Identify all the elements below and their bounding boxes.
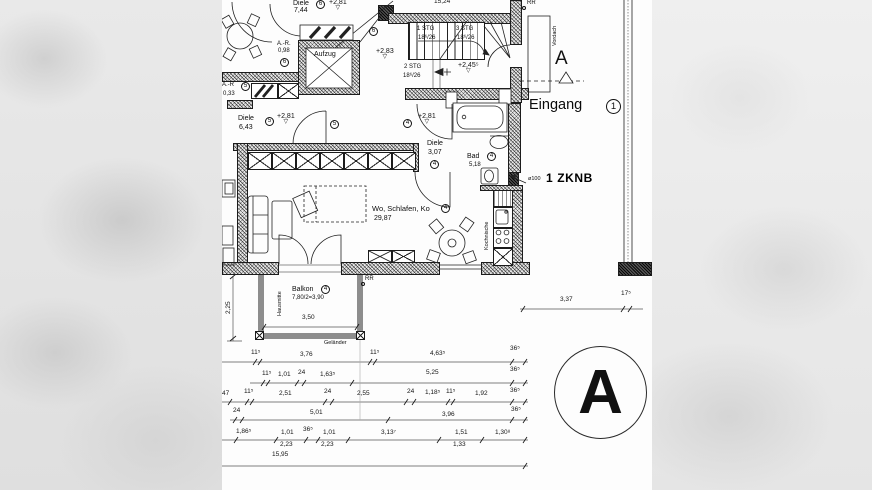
level-marker: +2,45⁵	[458, 62, 479, 74]
room-area-diele7: 7,44	[294, 7, 308, 14]
room-area-diele3: 3,07	[428, 149, 442, 156]
dim-label: 36⁵	[510, 388, 520, 395]
section-marker-letter: A	[578, 357, 623, 428]
dim-label: 3,13⁷	[381, 430, 396, 437]
dim-label: 11⁵	[370, 350, 379, 357]
section-marker-circle: A	[554, 346, 647, 439]
balcony-door-sill	[279, 265, 341, 272]
blurred-margin-right	[652, 0, 872, 490]
stair-riser-label: 18⁶/26	[418, 35, 435, 41]
kitchen-label: Kochnische	[484, 222, 490, 250]
dim-label: 1,01	[281, 430, 294, 437]
dim-label: 11⁵	[244, 389, 253, 396]
dim-label: 1,33	[453, 442, 466, 449]
room-label-diele6: Diele	[238, 115, 254, 122]
rr-label: RR	[365, 276, 374, 282]
pipe-label: ø100	[528, 177, 541, 183]
dim-label: 24	[324, 389, 331, 396]
room-label-ar-left: A.-R	[222, 82, 234, 88]
room-label-diele3: Diele	[427, 140, 443, 147]
dim-label: 2,23	[321, 442, 334, 449]
dim-label: 36⁵	[510, 367, 520, 374]
hausmitte-label: Hausmitte	[277, 291, 283, 316]
level-marker: +2,81	[277, 113, 295, 125]
dim-label: 5,01	[310, 410, 323, 417]
level-marker: +2,81	[418, 113, 436, 125]
level-marker: +2,83	[376, 48, 394, 60]
kitchen-fixtures	[496, 210, 509, 243]
dim-label: 24	[233, 408, 240, 415]
room-area-bad: 5,18	[469, 162, 481, 168]
dim-label: 3,96	[442, 412, 455, 419]
section-letter: A	[555, 48, 568, 70]
dim-label: 1,01	[323, 430, 336, 437]
dim-label-top: 15,24	[434, 0, 450, 6]
room-area-diele6: 6,43	[239, 124, 253, 131]
room-area-main: 29,87	[374, 215, 392, 222]
dim-label: 11⁵	[446, 389, 455, 396]
dim-label-total: 15,95	[272, 452, 288, 459]
bathtub	[453, 103, 507, 132]
dim-label: 17⁵	[621, 291, 631, 298]
room-label-bad: Bad	[467, 153, 479, 160]
rr-label: RR	[527, 0, 536, 6]
gelaender-label: Geländer	[324, 341, 347, 347]
balkon-calc-label: 7,80/2=3,90	[292, 295, 324, 301]
dim-label: 24	[298, 370, 305, 377]
dim-label: 11⁵	[262, 371, 271, 378]
dim-label: 24	[407, 389, 414, 396]
vordach-label: Vordach	[552, 26, 558, 46]
room-number-circle: 6	[369, 27, 378, 36]
blurred-margin-left	[0, 0, 222, 490]
dim-label: 2,55	[357, 391, 370, 398]
room-number-circle: 4	[487, 152, 496, 161]
room-number-circle: 6	[316, 0, 325, 9]
dim-label: 36⁵	[303, 427, 313, 434]
level-marker: +2,81	[329, 0, 347, 11]
stair-riser-label: 18⁶/26	[457, 35, 474, 41]
drawing-sheet: Diele 7,44 6 +2,81 A.-R. 0,98 6 Aufzug 6…	[222, 0, 652, 490]
room-number-circle: 5	[265, 117, 274, 126]
dim-label: 11⁵	[251, 350, 260, 357]
room-number-circle: 4	[441, 204, 450, 213]
room-number-circle: 5	[241, 82, 250, 91]
dim-label: 1,86⁵	[236, 429, 251, 436]
door-arcs-top	[232, 2, 302, 42]
room-number-circle: 5	[330, 120, 339, 129]
dim-label: 2,23	[280, 442, 293, 449]
toilet	[481, 168, 498, 184]
room-number-circle: 4	[403, 119, 412, 128]
dim-label: 5,25	[426, 370, 439, 377]
dim-label-balkon-width: 3,50	[302, 315, 315, 322]
stair-flight-label: 3 STG	[456, 26, 473, 32]
furniture	[248, 186, 476, 264]
eingang-number-circle: 1	[606, 99, 621, 114]
stair-riser-label: 18⁶/26	[403, 73, 420, 79]
left-edge-fixtures	[222, 180, 235, 265]
dim-label: 36⁵	[510, 346, 520, 353]
pipe-arrow	[510, 175, 526, 183]
eingang-label: Eingang	[529, 97, 582, 113]
room-number-circle: 4	[321, 285, 330, 294]
rr-marker	[522, 6, 526, 10]
entrance-door-arc	[488, 45, 510, 67]
exterior-edge-wall	[624, 0, 632, 264]
stair-flight-label: 1 STG	[417, 26, 434, 32]
room-label-balkon: Balkon	[292, 286, 313, 293]
door-frame	[499, 89, 511, 104]
stair-flight-label: 2 STG	[404, 64, 421, 70]
dim-label: 1,30⁸	[495, 430, 510, 437]
washbasin	[490, 136, 508, 149]
dim-label: 1,18⁵	[425, 390, 440, 397]
room-number-circle: 4	[430, 160, 439, 169]
room-area-ar-top: 0,98	[278, 48, 290, 54]
rr-marker	[361, 282, 365, 286]
dim-label: 36⁵	[511, 407, 521, 414]
door-arcs-apartment	[279, 104, 452, 264]
dim-label: 1,01	[278, 372, 291, 379]
room-label-ar-top: A.-R.	[277, 41, 291, 47]
table-and-chairs	[222, 14, 262, 61]
dim-label: 4,63⁵	[430, 351, 445, 358]
room-area-ar-left: 0,33	[223, 91, 235, 97]
window-lines	[440, 265, 481, 269]
dim-label: 1,63⁵	[320, 372, 335, 379]
room-label-main: Wo, Schlafen, Ko	[372, 205, 430, 213]
apartment-type-label: 1 ZKNB	[546, 171, 593, 185]
floorplan-screenshot: Diele 7,44 6 +2,81 A.-R. 0,98 6 Aufzug 6…	[0, 0, 872, 490]
dim-label: 3,76	[300, 352, 313, 359]
dim-label: 1,92	[475, 391, 488, 398]
dim-label: 2,51	[279, 391, 292, 398]
dim-label: 1,51	[455, 430, 468, 437]
dim-label: 3,37	[560, 297, 573, 304]
dim-label: 47	[222, 391, 229, 398]
room-label-aufzug: Aufzug	[314, 51, 336, 58]
room-number-circle: 6	[280, 58, 289, 67]
dim-label-vertical: 2,25	[225, 301, 232, 314]
